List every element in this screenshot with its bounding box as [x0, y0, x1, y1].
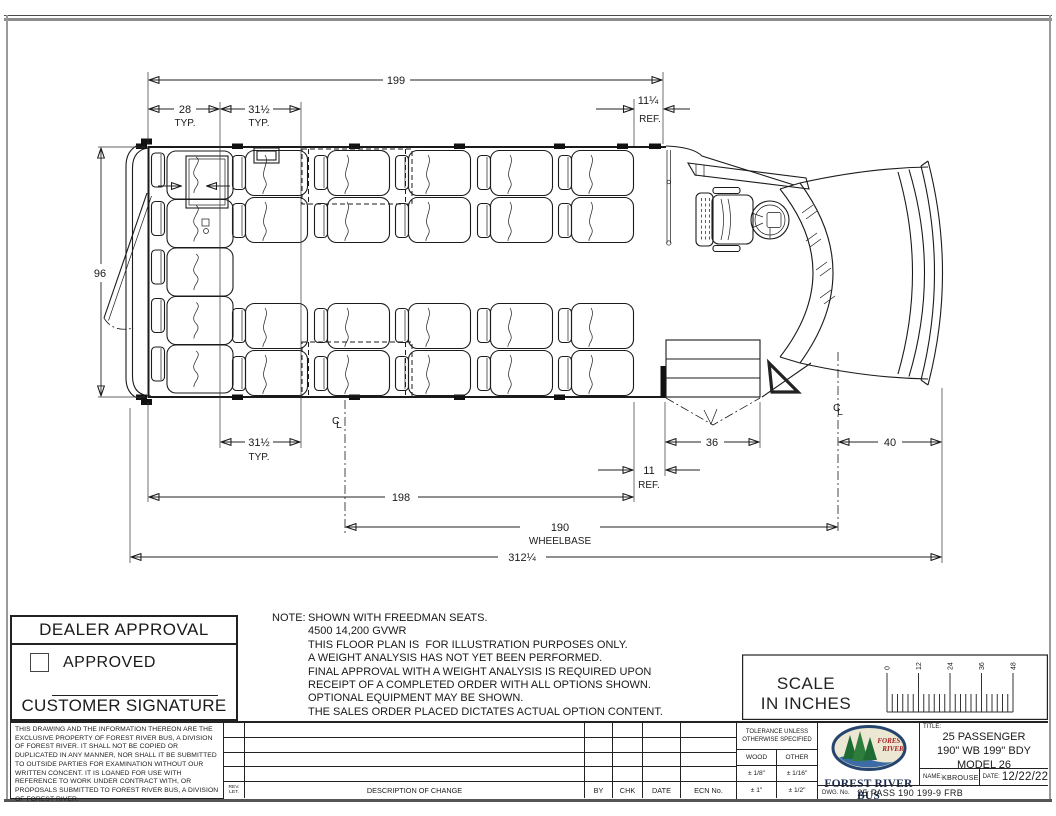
- scale-title-2: IN INCHES: [761, 694, 851, 713]
- extension-lines: [98, 72, 942, 563]
- svg-text:36: 36: [979, 662, 986, 670]
- title-block: TITLE: 25 PASSENGER 190" WB 199" BDY MOD…: [920, 721, 1048, 768]
- revision-col-ecn: ECN No.: [681, 782, 736, 798]
- name-label: NAME:: [923, 774, 942, 780]
- scale-ruler: [887, 673, 1013, 712]
- cab-front: [666, 146, 943, 425]
- svg-text:96: 96: [94, 268, 106, 280]
- dimension-seat-pitch-top: 31½ TYP.: [222, 104, 300, 129]
- revision-header-row: REV.LET. DESCRIPTION OF CHANGE BY CHK DA…: [224, 782, 736, 798]
- revision-row-empty: [224, 767, 736, 782]
- svg-text:0: 0: [885, 666, 892, 670]
- approved-checkbox[interactable]: [30, 653, 49, 672]
- note-line: A WEIGHT ANALYSIS HAS NOT YET BEEN PERFO…: [308, 652, 663, 665]
- svg-text:11¼: 11¼: [638, 95, 659, 107]
- scale-box: SCALE IN INCHES 0 12 24 36 48: [742, 640, 1048, 720]
- logo-cell: FOREST RIVER FOREST RIVER BUS: [818, 721, 920, 785]
- svg-text:WHEELBASE: WHEELBASE: [529, 536, 592, 547]
- scale-title-1: SCALE: [777, 674, 835, 693]
- dimension-floor-length: 198: [150, 492, 633, 504]
- title-line-2: 190" WB 199" BDY: [920, 745, 1048, 757]
- dimension-front-ref: 11¼ REF.: [596, 95, 690, 125]
- svg-text:24: 24: [948, 662, 955, 670]
- dimension-wheelbase: 190 WHEELBASE: [347, 522, 837, 547]
- bus-body: [136, 144, 666, 401]
- floor-plan-drawing: 199 28 TYP. 31½ TYP. 11¼ REF. 96: [0, 0, 1056, 612]
- rear-door-swing: [104, 193, 152, 329]
- note-line: 4500 14,200 GVWR: [308, 625, 663, 638]
- revision-col-chk: CHK: [613, 782, 643, 798]
- legal-notice: THIS DRAWING AND THE INFORMATION THEREON…: [10, 721, 224, 799]
- revision-col-rev-let: REV.LET.: [224, 782, 245, 798]
- dealer-approval-title: DEALER APPROVAL: [12, 617, 236, 645]
- svg-text:312¼: 312¼: [508, 552, 536, 564]
- svg-text:REF.: REF.: [638, 480, 660, 491]
- note-line: THE SALES ORDER PLACED DICTATES ACTUAL O…: [308, 706, 663, 719]
- tolerance-line2: OTHERWISE SPECIFIED: [737, 736, 817, 744]
- title-label: TITLE:: [923, 724, 941, 730]
- svg-text:L: L: [336, 419, 342, 431]
- revision-row-empty: [224, 723, 736, 738]
- svg-text:TYP.: TYP.: [175, 118, 196, 129]
- tolerance-block: TOLERANCE UNLESS OTHERWISE SPECIFIED WOO…: [737, 721, 818, 799]
- note-label: NOTE:: [272, 612, 308, 625]
- steering-wheel: [751, 201, 789, 239]
- revision-col-description: DESCRIPTION OF CHANGE: [245, 782, 585, 798]
- dimension-body-width: 96: [94, 149, 106, 396]
- revision-row-empty: [224, 753, 736, 768]
- forest-river-logo: FOREST RIVER: [819, 723, 919, 773]
- svg-text:TYP.: TYP.: [249, 452, 270, 463]
- title-line-1: 25 PASSENGER: [920, 731, 1048, 743]
- svg-text:198: 198: [392, 492, 410, 504]
- rear-bench-seat: [152, 151, 234, 393]
- note-line: THIS FLOOR PLAN IS FOR ILLUSTRATION PURP…: [308, 639, 663, 652]
- dwg-no-value: 25 PASS 190 199-9 FRB: [857, 788, 963, 798]
- dimension-overall-length: 312¼: [132, 552, 941, 564]
- tolerance-line1: TOLERANCE UNLESS: [737, 728, 817, 736]
- svg-text:199: 199: [387, 75, 405, 87]
- glass-hatch-marks: [802, 205, 835, 304]
- revision-col-date: DATE: [643, 782, 681, 798]
- wall-pillar-marks: [136, 144, 666, 401]
- dimension-door-ref: 11 REF.: [598, 465, 700, 491]
- dash-panel: [688, 163, 809, 189]
- dimension-body-length: 199: [150, 75, 662, 87]
- dimension-rear-spacing: 28 TYP.: [150, 104, 219, 129]
- svg-text:31½: 31½: [248, 437, 269, 449]
- svg-text:36: 36: [706, 437, 718, 449]
- stanchion-pole: [667, 150, 671, 245]
- approved-label: APPROVED: [63, 654, 156, 672]
- dimension-front-overhang: 40: [840, 437, 941, 449]
- driver-seat: [696, 188, 753, 252]
- seat-row-curb-side: [233, 304, 634, 396]
- revision-col-by: BY: [585, 782, 613, 798]
- stepwell-grab-rail: [769, 363, 798, 392]
- svg-text:31½: 31½: [248, 104, 269, 116]
- dealer-approval-box: DEALER APPROVAL APPROVED CUSTOMER SIGNAT…: [10, 615, 238, 721]
- windshield: [780, 183, 835, 363]
- drawing-sheet: 199 28 TYP. 31½ TYP. 11¼ REF. 96: [0, 0, 1056, 816]
- dimension-seat-pitch-bottom: 31½ TYP.: [222, 437, 300, 463]
- hood: [800, 167, 928, 379]
- seat-row-driver-side: [233, 151, 634, 243]
- drawing-number-row: DWG. No. 25 PASS 190 199-9 FRB: [818, 785, 1048, 799]
- svg-text:11: 11: [643, 465, 654, 477]
- tolerance-wood-1: ± 1/8": [737, 766, 777, 782]
- svg-text:190: 190: [551, 522, 569, 534]
- note-line: FINAL APPROVAL WITH A WEIGHT ANALYSIS IS…: [308, 666, 663, 679]
- dimension-door-width: 36: [667, 437, 759, 449]
- tolerance-wood-2: ± 1": [737, 782, 777, 798]
- note-line: RECEIPT OF A COMPLETED ORDER WITH ALL OP…: [308, 679, 663, 692]
- tolerance-other-1: ± 1/16": [777, 766, 817, 782]
- name-value: KBROUSE: [942, 773, 979, 782]
- svg-text:48: 48: [1011, 662, 1018, 670]
- note-line: SHOWN WITH FREEDMAN SEATS.: [308, 612, 487, 625]
- svg-text:TYP.: TYP.: [249, 118, 270, 129]
- name-date-row: NAME: KBROUSE DATE: 12/22/22: [920, 768, 1048, 785]
- note-line: OPTIONAL EQUIPMENT MAY BE SHOWN.: [308, 692, 663, 705]
- svg-text:12: 12: [916, 662, 923, 670]
- date-label: DATE:: [983, 774, 1000, 780]
- svg-text:L: L: [837, 406, 843, 418]
- svg-text:28: 28: [179, 104, 191, 116]
- centerline-symbol-front: C L: [833, 402, 843, 418]
- notes-block: NOTE: SHOWN WITH FREEDMAN SEATS. 4500 14…: [272, 612, 663, 719]
- svg-text:40: 40: [884, 437, 896, 449]
- entry-door-steps: [666, 340, 760, 425]
- logo-oval-text-2: RIVER: [881, 745, 904, 753]
- svg-text:REF.: REF.: [639, 114, 661, 125]
- date-value: 12/22/22: [1002, 771, 1048, 783]
- scale-ruler-numbers: 0 12 24 36 48: [885, 662, 1018, 670]
- centerline-symbol-rear: C L: [332, 415, 342, 431]
- revision-table: REV.LET. DESCRIPTION OF CHANGE BY CHK DA…: [224, 721, 737, 799]
- customer-signature-label: CUSTOMER SIGNATURE: [12, 696, 236, 716]
- revision-row-empty: [224, 738, 736, 753]
- tolerance-other-2: ± 1/2": [777, 782, 817, 798]
- tolerance-wood-header: WOOD: [737, 750, 777, 766]
- tolerance-other-header: OTHER: [777, 750, 817, 766]
- dwg-no-label: DWG. No.: [822, 790, 849, 796]
